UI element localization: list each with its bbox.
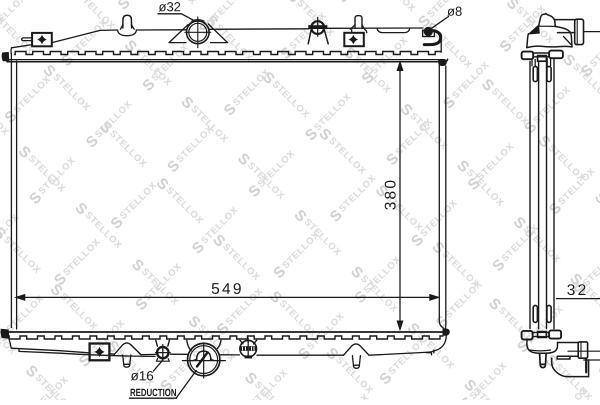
svg-text:380: 380 (382, 178, 399, 210)
svg-text:ø32: ø32 (158, 0, 180, 14)
svg-text:549: 549 (211, 281, 244, 298)
svg-text:ø8: ø8 (447, 4, 462, 19)
svg-text:REDUCTION: REDUCTION (130, 387, 177, 399)
svg-text:32: 32 (567, 282, 589, 299)
svg-text:ø16: ø16 (130, 368, 153, 383)
